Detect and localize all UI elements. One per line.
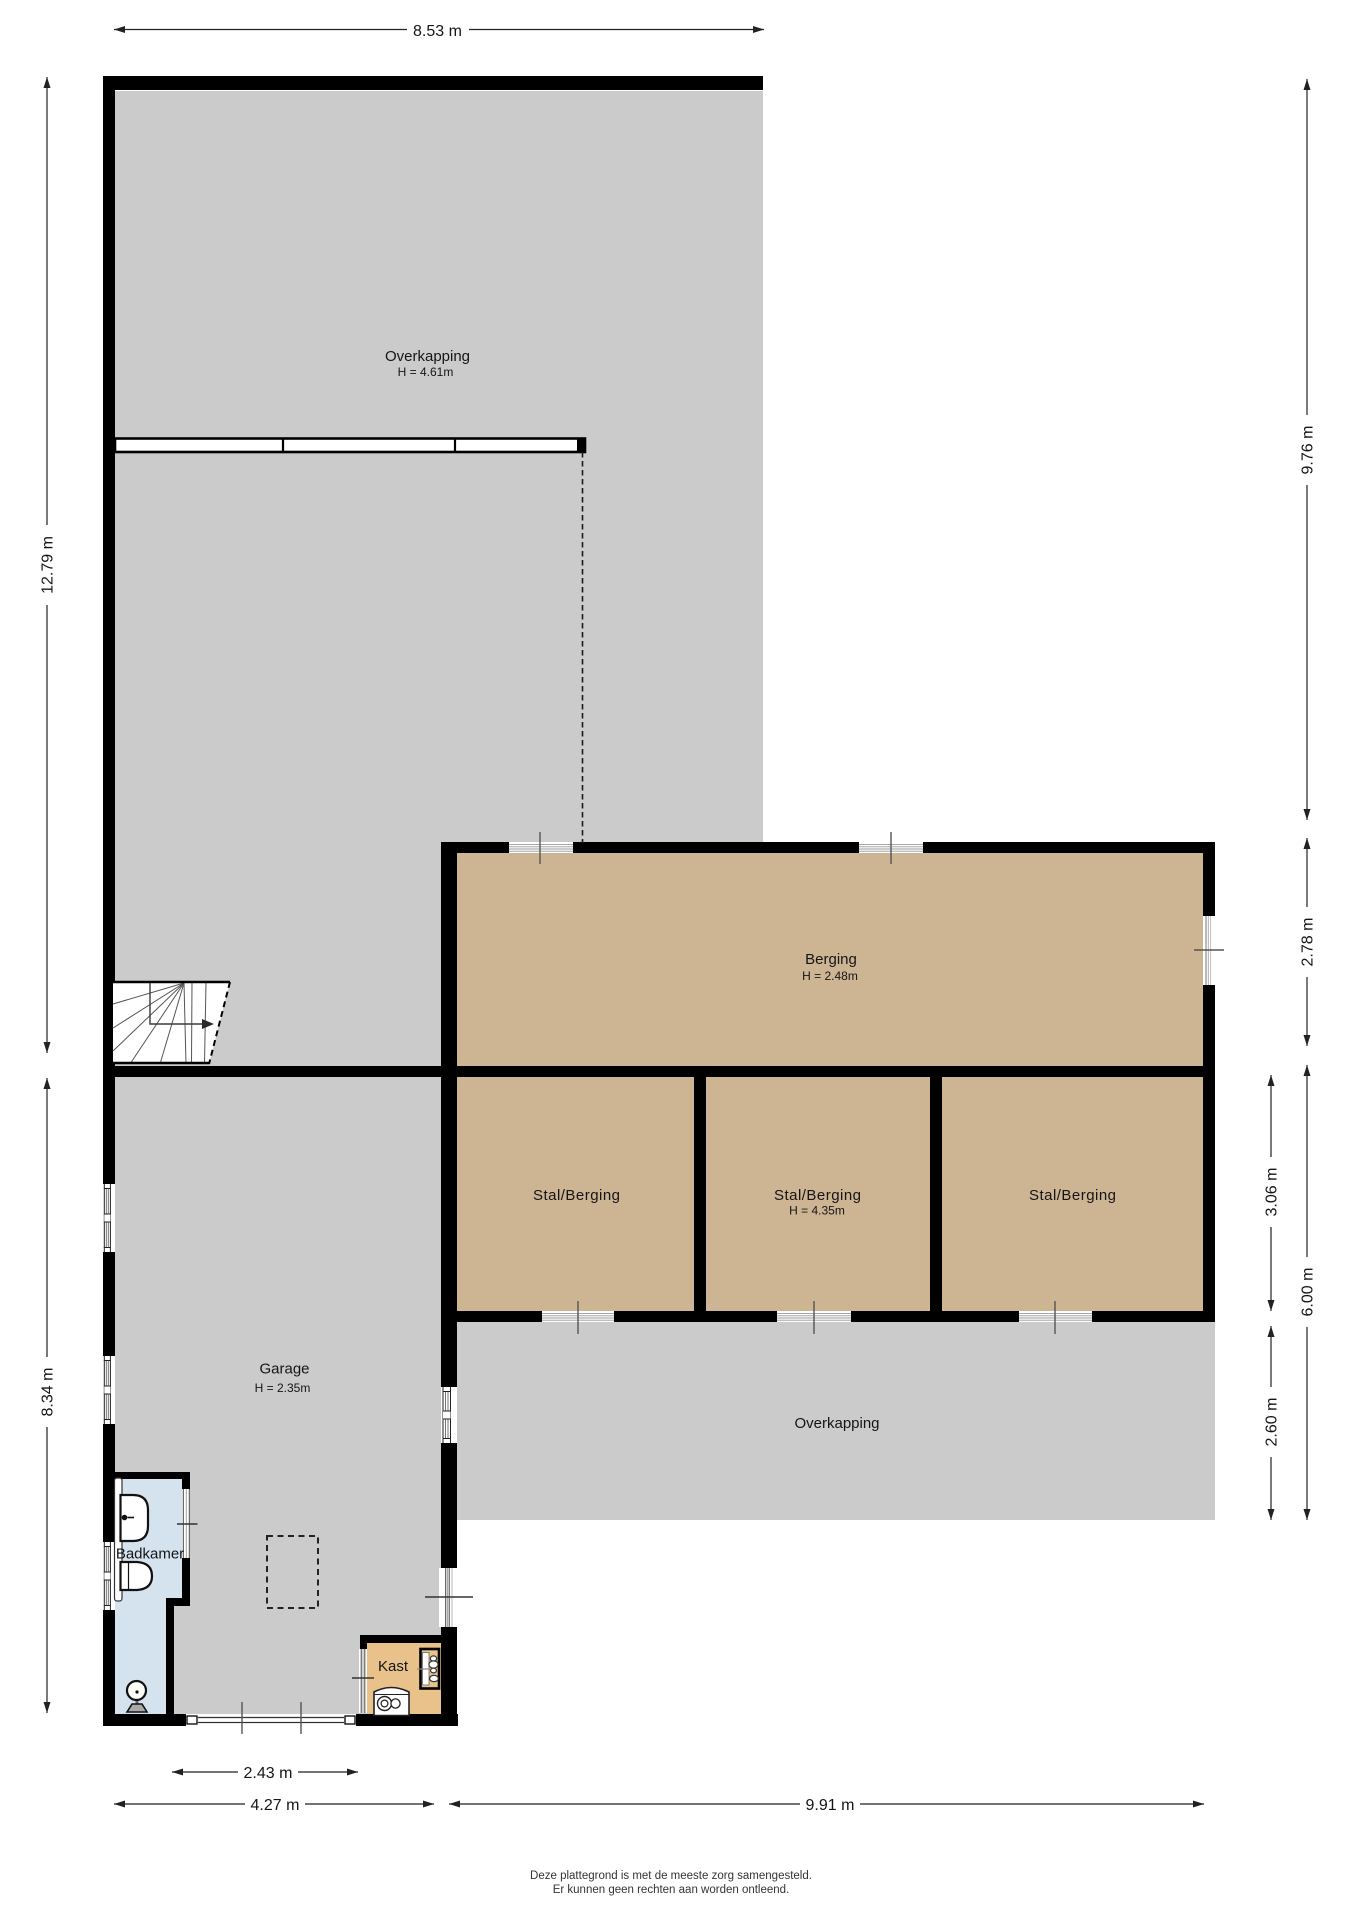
- svg-text:Badkamer: Badkamer: [116, 1546, 184, 1563]
- svg-text:H = 4.61m: H = 4.61m: [398, 365, 454, 379]
- svg-text:3.06 m: 3.06 m: [1264, 1168, 1281, 1217]
- svg-text:9.91 m: 9.91 m: [806, 1797, 855, 1814]
- svg-text:Garage: Garage: [259, 1361, 309, 1378]
- svg-text:H = 2.35m: H = 2.35m: [255, 1381, 311, 1395]
- svg-text:Kast: Kast: [378, 1658, 409, 1675]
- svg-text:12.79 m: 12.79 m: [40, 536, 57, 594]
- svg-text:8.34 m: 8.34 m: [40, 1368, 57, 1417]
- svg-text:8.53 m: 8.53 m: [413, 23, 462, 40]
- svg-text:2.60 m: 2.60 m: [1264, 1398, 1281, 1447]
- svg-text:4.27 m: 4.27 m: [251, 1797, 300, 1814]
- svg-text:Er kunnen geen rechten aan wor: Er kunnen geen rechten aan worden ontlee…: [553, 1884, 790, 1896]
- svg-text:6.00 m: 6.00 m: [1300, 1268, 1317, 1317]
- svg-text:Stal/Berging: Stal/Berging: [1029, 1187, 1116, 1204]
- svg-text:Berging: Berging: [805, 951, 857, 968]
- svg-text:Overkapping: Overkapping: [794, 1415, 879, 1432]
- svg-text:2.78 m: 2.78 m: [1300, 918, 1317, 967]
- svg-text:H = 2.48m: H = 2.48m: [802, 969, 858, 983]
- svg-text:Stal/Berging: Stal/Berging: [774, 1187, 861, 1204]
- svg-text:Overkapping: Overkapping: [385, 348, 470, 365]
- svg-text:2.43 m: 2.43 m: [244, 1765, 293, 1782]
- svg-text:9.76 m: 9.76 m: [1300, 426, 1317, 475]
- svg-text:Deze plattegrond is met de mee: Deze plattegrond is met de meeste zorg s…: [530, 1870, 812, 1882]
- svg-text:Stal/Berging: Stal/Berging: [533, 1187, 620, 1204]
- svg-text:H = 4.35m: H = 4.35m: [789, 1204, 845, 1218]
